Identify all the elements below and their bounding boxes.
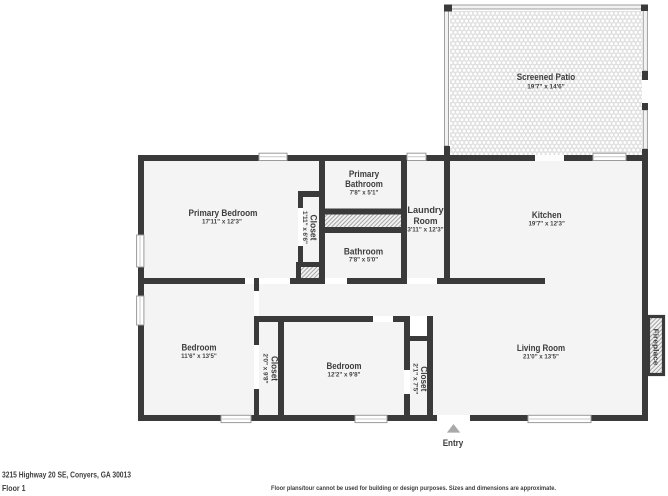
svg-text:Closet: Closet [270,356,280,381]
svg-text:1'11" x 6'6": 1'11" x 6'6" [301,211,308,244]
svg-text:3'11" x 12'3": 3'11" x 12'3" [407,227,443,234]
svg-text:21'0" x 13'5": 21'0" x 13'5" [523,354,559,361]
svg-text:11'6" x 13'5": 11'6" x 13'5" [181,353,217,360]
svg-text:Closet: Closet [309,215,319,241]
svg-text:Primary Bedroom: Primary Bedroom [189,208,258,218]
svg-text:Entry: Entry [443,438,464,448]
svg-text:Living Room: Living Room [517,343,565,353]
svg-text:7'8" x 5'0": 7'8" x 5'0" [349,257,378,264]
svg-text:17'11" x 12'3": 17'11" x 12'3" [202,219,242,226]
svg-text:3215 Highway 20 SE, Conyers, G: 3215 Highway 20 SE, Conyers, GA 30013 [2,470,131,480]
svg-text:Screened Patio: Screened Patio [517,72,576,82]
svg-text:12'2" x 9'8": 12'2" x 9'8" [328,372,361,379]
svg-text:Closet: Closet [419,366,429,391]
svg-text:2'0" x 9'8": 2'0" x 9'8" [262,354,269,384]
svg-text:Bathroom: Bathroom [344,247,383,257]
svg-text:Bathroom: Bathroom [345,179,383,189]
svg-text:Fireplace: Fireplace [652,329,661,366]
svg-text:Floor plans/tour cannot be use: Floor plans/tour cannot be used for buil… [271,485,556,492]
svg-text:Bedroom: Bedroom [181,343,216,353]
svg-text:Primary: Primary [349,169,379,179]
svg-text:Laundry: Laundry [407,205,443,215]
svg-text:Floor 1: Floor 1 [2,483,26,493]
svg-text:Kitchen: Kitchen [532,210,562,220]
svg-text:Bedroom: Bedroom [326,361,361,371]
svg-text:2'1" x 7'5": 2'1" x 7'5" [412,363,419,394]
svg-text:7'8" x 5'1": 7'8" x 5'1" [350,190,379,197]
svg-text:19'7" x 14'6": 19'7" x 14'6" [527,84,565,91]
svg-text:Room: Room [414,216,438,226]
svg-text:19'7" x 12'3": 19'7" x 12'3" [528,221,565,228]
